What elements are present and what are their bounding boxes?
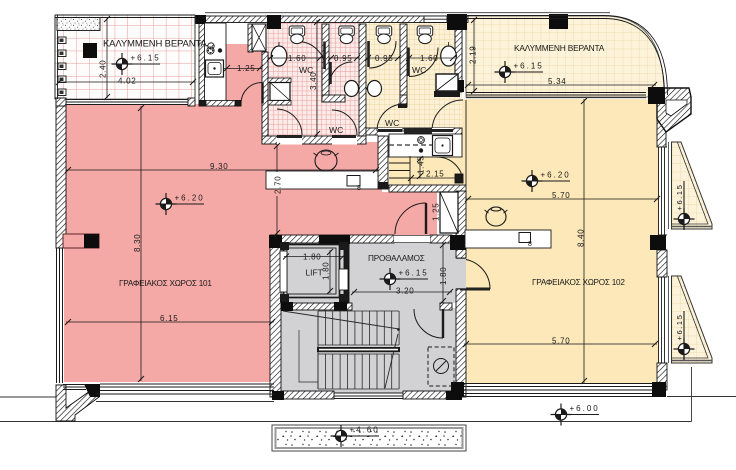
svg-text:3.20: 3.20 <box>396 287 414 296</box>
svg-text:3.40: 3.40 <box>309 72 318 90</box>
svg-text:8: 8 <box>528 241 532 248</box>
svg-text:5.70: 5.70 <box>552 337 570 346</box>
svg-text:1.80: 1.80 <box>303 253 321 262</box>
svg-text:6.15: 6.15 <box>160 314 178 323</box>
svg-text:4.02: 4.02 <box>118 77 136 86</box>
svg-text:2.19: 2.19 <box>469 46 478 64</box>
svg-text:+6.00: +6.00 <box>570 404 600 413</box>
svg-text:ΚΑΛΥΜΜΕΝΗ ΒΕΡΑΝΤΑ: ΚΑΛΥΜΜΕΝΗ ΒΕΡΑΝΤΑ <box>514 43 605 53</box>
svg-text:0.95: 0.95 <box>375 54 393 63</box>
svg-text:8: 8 <box>357 185 361 192</box>
svg-text:LIFT: LIFT <box>306 268 323 278</box>
svg-text:+6.15: +6.15 <box>131 54 161 63</box>
svg-text:1.45: 1.45 <box>417 156 426 174</box>
svg-text:0.95: 0.95 <box>334 54 352 63</box>
svg-text:+6.20: +6.20 <box>541 171 571 180</box>
svg-text:2.40: 2.40 <box>99 60 108 78</box>
svg-text:ΓΡΑΦΕΙΑΚΟΣ ΧΩΡΟΣ 102: ΓΡΑΦΕΙΑΚΟΣ ΧΩΡΟΣ 102 <box>532 278 625 287</box>
svg-text:+6.15: +6.15 <box>675 314 684 341</box>
svg-text:8.30: 8.30 <box>133 234 142 252</box>
svg-text:ΓΡΑΦΕΙΑΚΟΣ ΧΩΡΟΣ 101: ΓΡΑΦΕΙΑΚΟΣ ΧΩΡΟΣ 101 <box>119 279 212 288</box>
svg-text:5.70: 5.70 <box>552 191 570 200</box>
svg-text:8.40: 8.40 <box>577 229 586 247</box>
svg-text:WC: WC <box>329 125 343 135</box>
svg-text:1.60: 1.60 <box>288 54 306 63</box>
svg-text:ΠΡΟΘΑΛΑΜΟΣ: ΠΡΟΘΑΛΑΜΟΣ <box>368 254 425 263</box>
svg-text:+6.20: +6.20 <box>175 194 205 203</box>
svg-text:WC: WC <box>385 118 399 128</box>
svg-text:5.34: 5.34 <box>548 77 566 86</box>
svg-text:WC: WC <box>412 65 426 75</box>
svg-text:+6.15: +6.15 <box>675 184 684 211</box>
svg-text:2.70: 2.70 <box>274 176 283 194</box>
svg-text:ΚΑΛΥΜΜΕΝΗ ΒΕΡΑΝΤΑ: ΚΑΛΥΜΜΕΝΗ ΒΕΡΑΝΤΑ <box>103 39 207 50</box>
svg-text:1.80: 1.80 <box>439 267 448 285</box>
svg-text:9.30: 9.30 <box>210 162 228 171</box>
svg-text:+6.15: +6.15 <box>399 269 429 278</box>
svg-text:1.25: 1.25 <box>432 203 441 221</box>
svg-text:1.25: 1.25 <box>237 64 255 73</box>
svg-text:1.60: 1.60 <box>420 54 438 63</box>
svg-text:2.15: 2.15 <box>426 170 444 179</box>
svg-text:+6.15: +6.15 <box>514 62 544 71</box>
svg-text:+4.60: +4.60 <box>350 426 380 435</box>
svg-text:1.80: 1.80 <box>322 262 331 280</box>
